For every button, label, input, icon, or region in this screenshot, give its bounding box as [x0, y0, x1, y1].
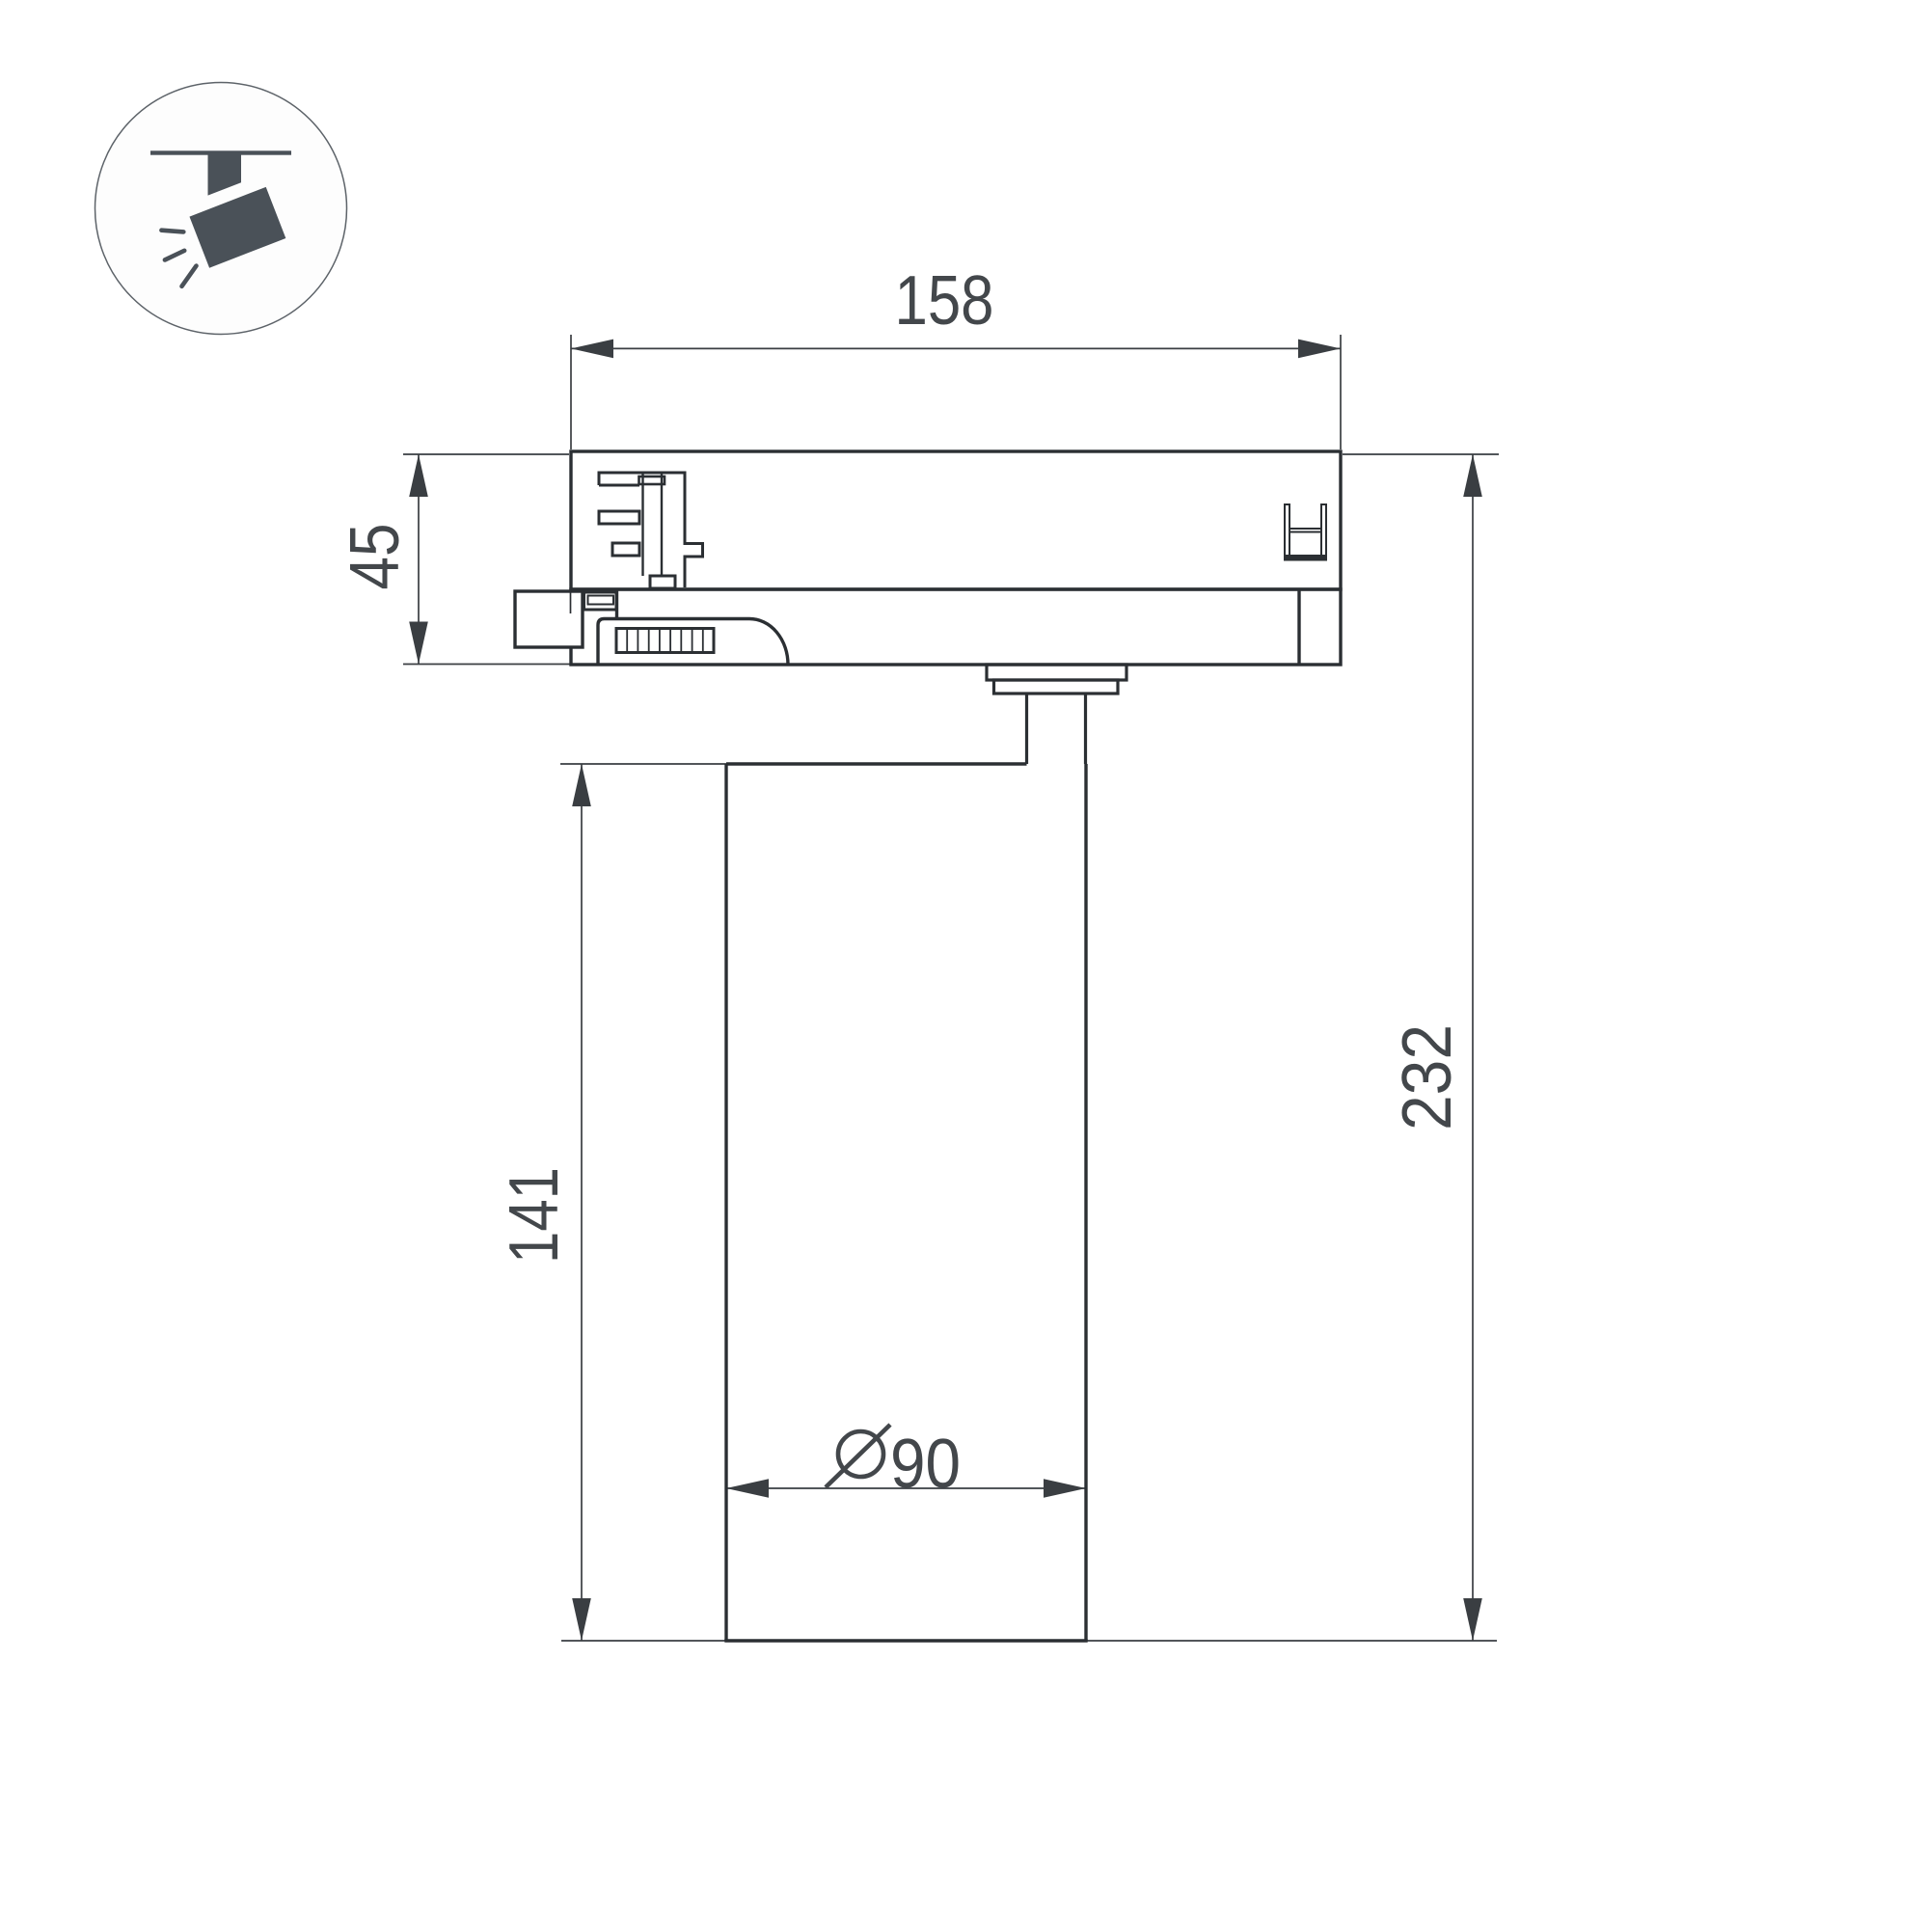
- svg-text:232: 232: [1389, 1024, 1466, 1130]
- svg-text:45: 45: [337, 524, 414, 590]
- svg-text:141: 141: [496, 1167, 573, 1264]
- svg-text:158: 158: [895, 262, 994, 340]
- svg-text:90: 90: [890, 1426, 961, 1503]
